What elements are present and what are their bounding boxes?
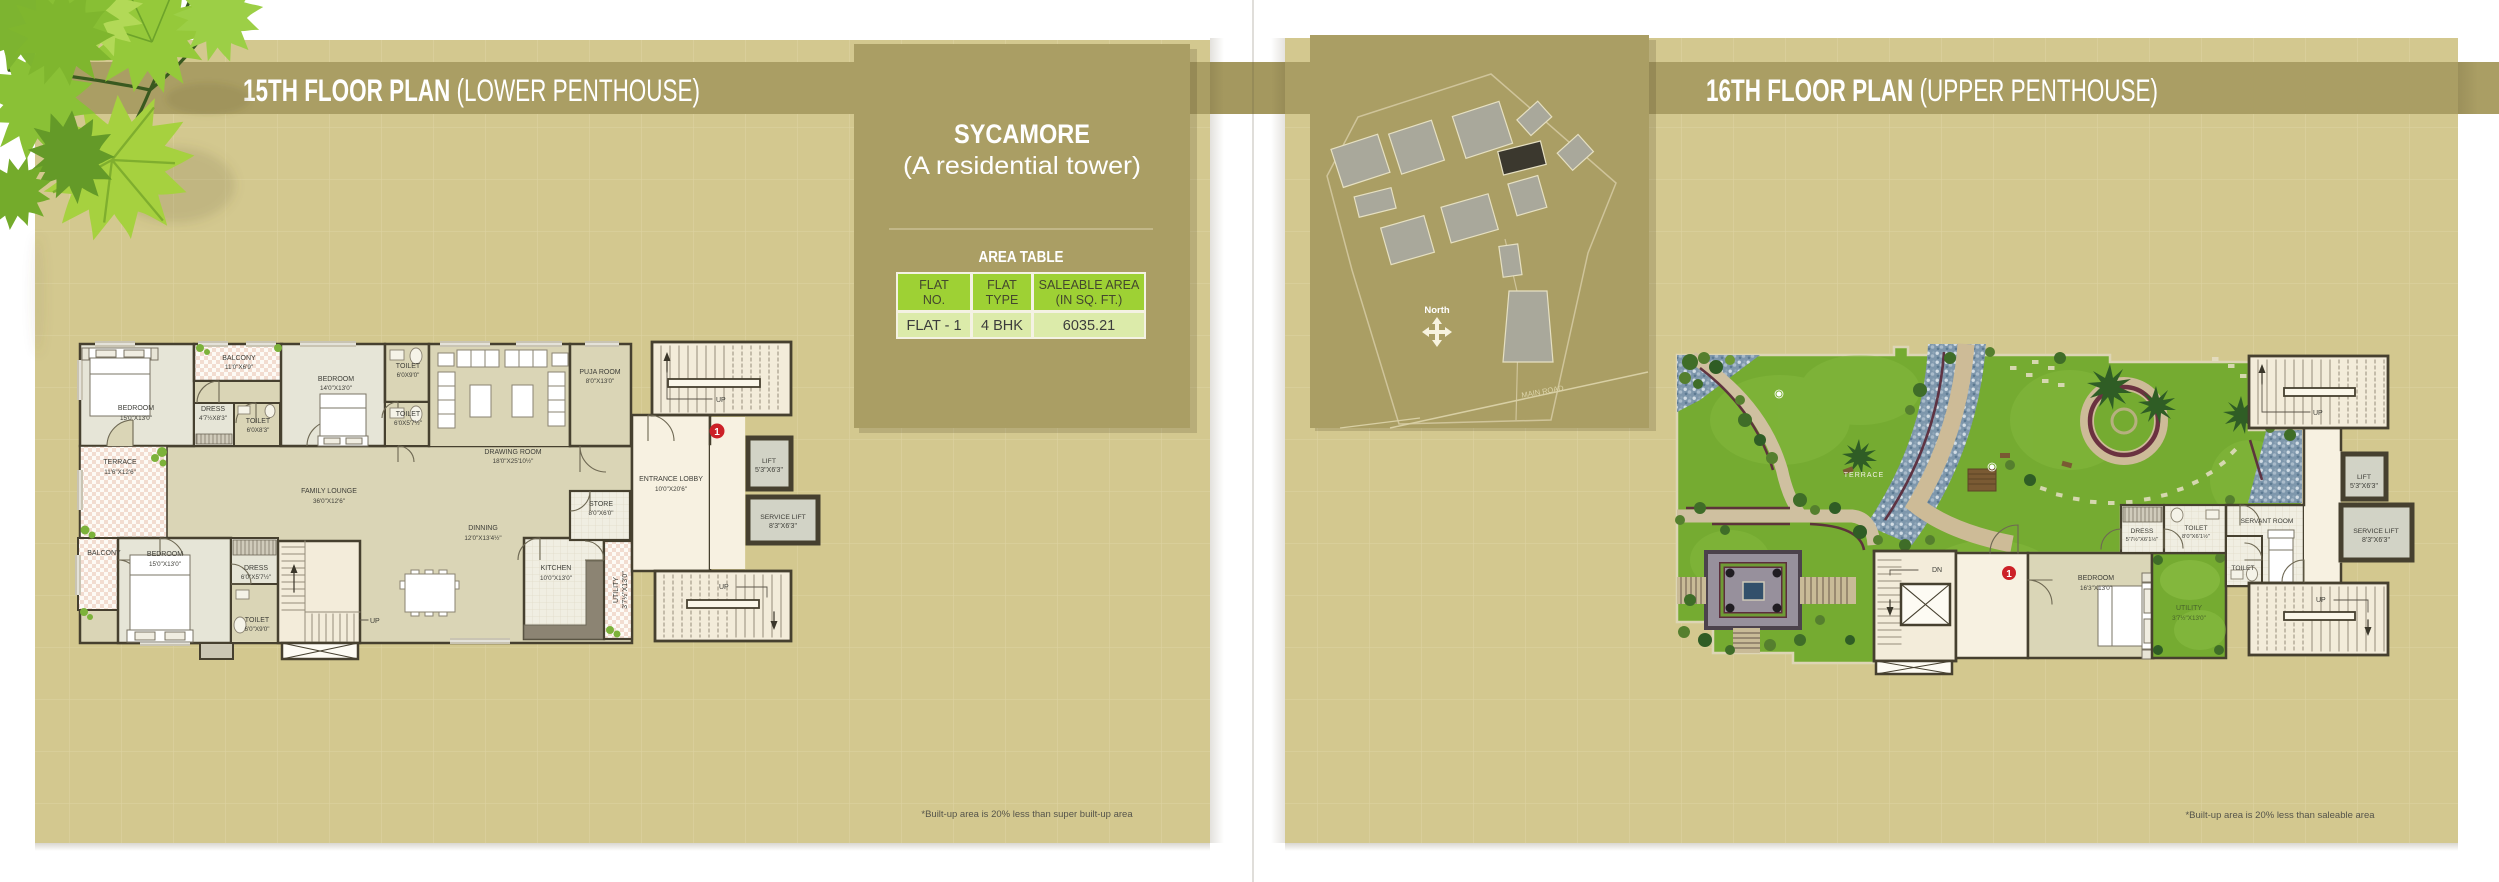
svg-text:5'3"X6'3": 5'3"X6'3" <box>755 467 783 474</box>
svg-text:10'0"X13'0": 10'0"X13'0" <box>540 575 572 582</box>
svg-text:DRESS: DRESS <box>201 406 225 413</box>
svg-text:1: 1 <box>714 427 720 438</box>
svg-text:*Built-up area is 20% less tha: *Built-up area is 20% less than saleable… <box>2185 810 2375 821</box>
svg-text:SERVICE LIFT: SERVICE LIFT <box>2353 528 2399 535</box>
svg-text:8'3"X6'3": 8'3"X6'3" <box>2362 537 2390 544</box>
svg-text:BALCONY: BALCONY <box>87 550 121 557</box>
svg-text:AREA TABLE: AREA TABLE <box>979 249 1064 266</box>
svg-text:6'0"X5'7½": 6'0"X5'7½" <box>241 573 271 581</box>
svg-text:18'0"X25'10½": 18'0"X25'10½" <box>493 457 534 465</box>
svg-text:FLAT - 1: FLAT - 1 <box>906 318 961 334</box>
svg-text:KITCHEN: KITCHEN <box>541 565 572 572</box>
svg-text:8'0"X6'0": 8'0"X6'0" <box>588 510 613 517</box>
svg-text:UTILITY: UTILITY <box>2176 605 2202 612</box>
svg-text:LIFT: LIFT <box>2357 474 2371 481</box>
svg-text:3'7½"X13'0": 3'7½"X13'0" <box>2172 614 2206 622</box>
svg-text:FLAT: FLAT <box>919 278 949 292</box>
svg-text:15TH FLOOR PLAN (LOWER PENTHOU: 15TH FLOOR PLAN (LOWER PENTHOUSE) <box>243 72 700 108</box>
svg-text:PUJA ROOM: PUJA ROOM <box>579 369 620 376</box>
svg-text:TOILET: TOILET <box>245 617 270 624</box>
svg-text:8'0"X13'0": 8'0"X13'0" <box>586 378 615 385</box>
svg-text:16TH FLOOR PLAN (UPPER PENTHOU: 16TH FLOOR PLAN (UPPER PENTHOUSE) <box>1706 72 2158 108</box>
svg-text:LIFT: LIFT <box>762 458 776 465</box>
svg-text:15'0"X13'0": 15'0"X13'0" <box>149 561 181 568</box>
svg-text:UP: UP <box>719 584 729 591</box>
svg-text:UP: UP <box>2313 410 2323 417</box>
svg-text:FLAT: FLAT <box>987 278 1017 292</box>
svg-text:5'7½"X6'1½": 5'7½"X6'1½" <box>2126 536 2159 543</box>
svg-text:BEDROOM: BEDROOM <box>2078 575 2114 582</box>
svg-text:SERVICE LIFT: SERVICE LIFT <box>760 514 806 521</box>
svg-text:UP: UP <box>370 618 380 625</box>
svg-text:6'0X8'3": 6'0X8'3" <box>247 427 270 434</box>
svg-text:STORE: STORE <box>589 501 613 508</box>
svg-text:UP: UP <box>716 397 726 404</box>
svg-text:DINNING: DINNING <box>468 525 498 532</box>
svg-text:TOILET: TOILET <box>396 411 421 418</box>
svg-text:6035.21: 6035.21 <box>1063 318 1115 334</box>
svg-text:TYPE: TYPE <box>986 293 1019 307</box>
svg-text:TOILET: TOILET <box>396 363 421 370</box>
svg-text:4 BHK: 4 BHK <box>981 318 1023 334</box>
svg-text:(IN SQ. FT.): (IN SQ. FT.) <box>1056 293 1123 307</box>
svg-text:5'3"X6'3": 5'3"X6'3" <box>2350 483 2378 490</box>
svg-text:16'3"X13'0": 16'3"X13'0" <box>2080 585 2112 592</box>
svg-text:BEDROOM: BEDROOM <box>147 551 183 558</box>
svg-text:6'0"X9'0": 6'0"X9'0" <box>244 626 269 633</box>
svg-text:4'7½X8'3": 4'7½X8'3" <box>199 414 227 422</box>
svg-text:*Built-up area is 20% less tha: *Built-up area is 20% less than super bu… <box>921 809 1133 820</box>
svg-text:TOILET: TOILET <box>2232 565 2255 572</box>
svg-text:SERVANT ROOM: SERVANT ROOM <box>2241 518 2294 525</box>
svg-text:TERRACE: TERRACE <box>1844 472 1884 479</box>
svg-text:DRESS: DRESS <box>244 565 268 572</box>
svg-text:(A residential tower): (A residential tower) <box>903 152 1141 180</box>
svg-text:SALEABLE AREA: SALEABLE AREA <box>1039 278 1140 292</box>
svg-text:TOILET: TOILET <box>2185 525 2208 532</box>
svg-text:North: North <box>1424 305 1450 316</box>
svg-text:DRAWING ROOM: DRAWING ROOM <box>484 449 541 456</box>
svg-text:FAMILY LOUNGE: FAMILY LOUNGE <box>301 488 357 495</box>
svg-text:15'0"X13'0": 15'0"X13'0" <box>120 415 152 422</box>
svg-text:UTILITY: UTILITY <box>613 577 620 603</box>
svg-text:14'0"X13'0": 14'0"X13'0" <box>320 385 352 392</box>
svg-text:DN: DN <box>1932 567 1942 574</box>
svg-text:11'6"X12'6": 11'6"X12'6" <box>104 469 136 476</box>
svg-text:SYCAMORE: SYCAMORE <box>954 119 1090 149</box>
svg-text:10'0"X20'6": 10'0"X20'6" <box>655 486 687 493</box>
svg-text:DRESS: DRESS <box>2131 528 2154 535</box>
svg-text:1: 1 <box>2006 569 2012 580</box>
svg-text:11'0"X6'9": 11'0"X6'9" <box>225 364 253 371</box>
svg-text:36'0"X12'6": 36'0"X12'6" <box>313 498 345 505</box>
svg-text:BEDROOM: BEDROOM <box>318 376 354 383</box>
svg-text:TERRACE: TERRACE <box>103 459 137 466</box>
svg-text:BALCONY: BALCONY <box>222 355 256 362</box>
svg-text:NO.: NO. <box>923 293 945 307</box>
svg-text:BEDROOM: BEDROOM <box>118 405 154 412</box>
svg-text:6'0X5'7½": 6'0X5'7½" <box>394 419 422 427</box>
svg-text:8'0"X6'1½": 8'0"X6'1½" <box>2182 533 2210 540</box>
svg-text:UP: UP <box>2316 597 2326 604</box>
svg-text:TOILET: TOILET <box>246 418 271 425</box>
svg-text:8'3"X6'3": 8'3"X6'3" <box>769 523 797 530</box>
svg-text:ENTRANCE LOBBY: ENTRANCE LOBBY <box>639 476 703 483</box>
svg-text:3'7½"X13'0": 3'7½"X13'0" <box>621 571 629 609</box>
svg-text:6'0X9'0": 6'0X9'0" <box>397 372 420 379</box>
svg-text:12'0"X13'4½": 12'0"X13'4½" <box>464 534 501 542</box>
